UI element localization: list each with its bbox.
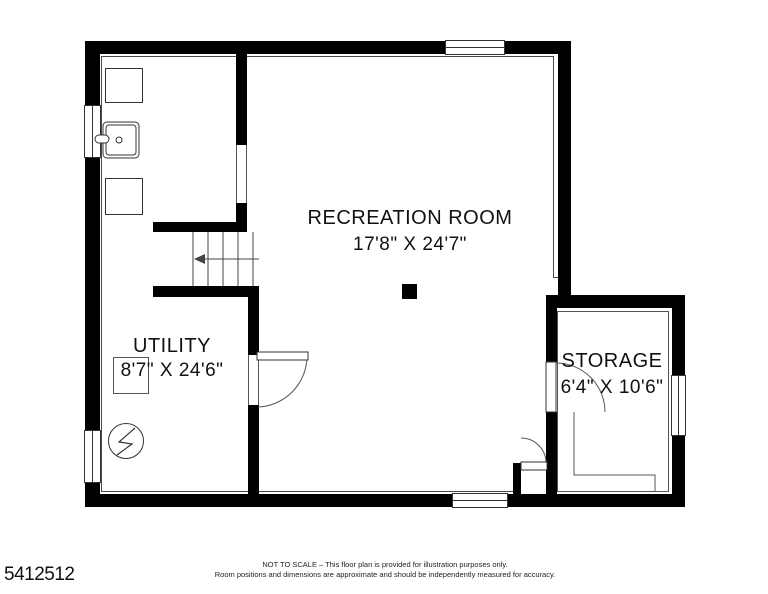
utility-room-dimensions: 8'7" X 24'6": [87, 360, 257, 382]
door-swing-arc: [258, 356, 307, 407]
disclaimer-line-2: Room positions and dimensions are approx…: [85, 570, 685, 580]
storage-room-dimensions: 6'4" X 10'6": [532, 377, 692, 399]
staircase: [193, 232, 259, 286]
listing-id: 5412512: [4, 564, 74, 586]
floor-plan-page: RECREATION ROOM 17'8" X 24'7" UTILITY 8'…: [0, 0, 768, 594]
storage-platform-outline: [574, 412, 655, 491]
utility-room-label: UTILITY: [97, 335, 247, 358]
disclaimer-line-1: NOT TO SCALE – This floor plan is provid…: [85, 560, 685, 570]
electrical-panel-circle: [109, 424, 144, 459]
door-utility: [257, 352, 308, 407]
door-leaf: [257, 352, 308, 360]
door-alcove: [521, 438, 547, 470]
lightning-bolt-icon: [117, 428, 135, 455]
storage-room-label: STORAGE: [537, 350, 687, 373]
door-swing-arc: [521, 438, 546, 462]
sink-faucet: [95, 135, 109, 143]
laundry-sink: [95, 122, 139, 158]
recreation-room-dimensions: 17'8" X 24'7": [260, 234, 560, 256]
fixture-layer: [0, 0, 768, 594]
recreation-room-label: RECREATION ROOM: [260, 207, 560, 230]
disclaimer: NOT TO SCALE – This floor plan is provid…: [85, 560, 685, 579]
door-leaf: [521, 462, 547, 470]
stairs-direction-arrow: [194, 254, 205, 264]
